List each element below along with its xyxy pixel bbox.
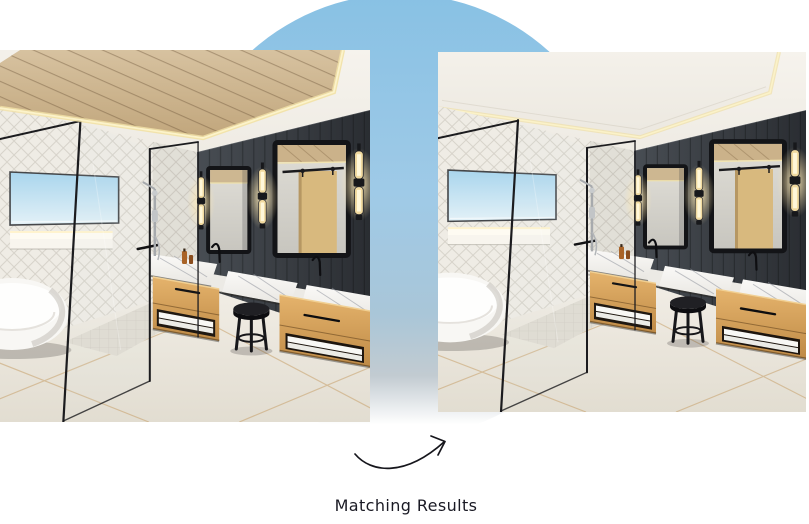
caption-label: Matching Results	[298, 496, 514, 515]
bathroom-photo-left	[0, 50, 370, 422]
figure-canvas: Matching Results	[0, 0, 809, 524]
curved-arrow-icon	[345, 428, 460, 480]
bathroom-photo-right	[438, 52, 806, 412]
